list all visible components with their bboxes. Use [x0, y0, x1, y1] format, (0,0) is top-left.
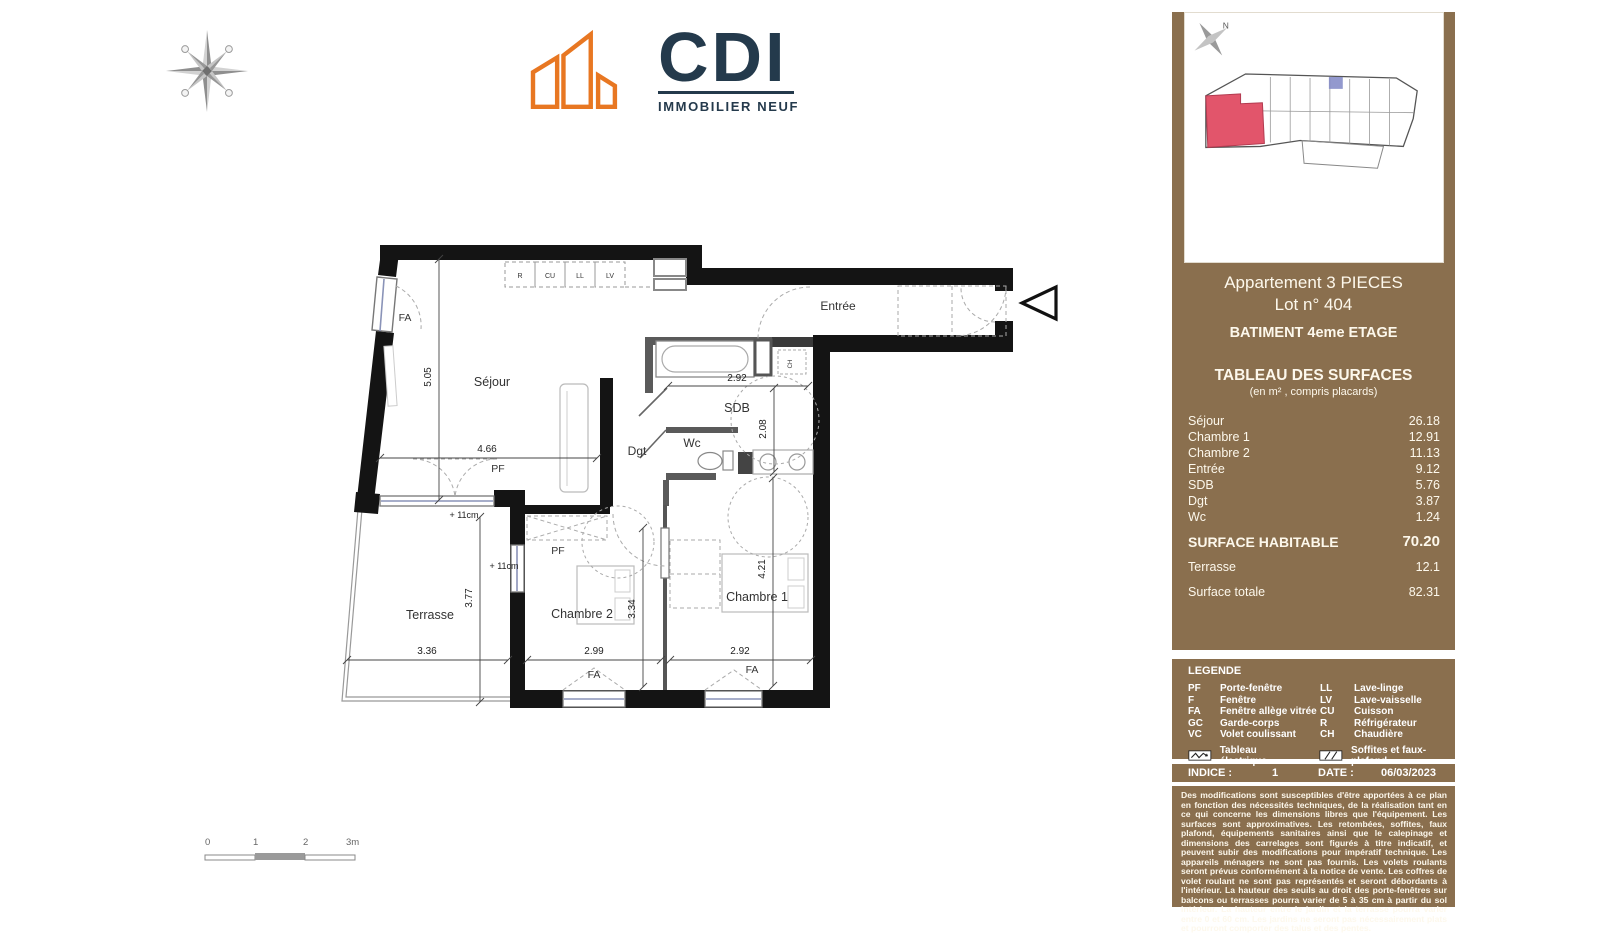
table-row: Chambre 112.91 — [1172, 429, 1455, 445]
electrical-panel-icon — [1188, 749, 1212, 762]
scale-labels: 0 1 2 3m — [205, 837, 359, 848]
toilet-icon — [698, 453, 722, 470]
building-map-svg: N — [1185, 13, 1443, 262]
tag-fa-chambre1: FA — [746, 664, 759, 676]
scale-bar: 0 1 2 3m — [200, 833, 370, 869]
duct-column — [755, 340, 771, 375]
table-row: SDB5.76 — [1172, 477, 1455, 493]
cdi-buildings-icon — [512, 26, 638, 110]
highlighted-apartment — [1205, 94, 1264, 148]
disclaimer-block: Des modifications sont susceptibles d'êt… — [1172, 786, 1455, 907]
indice-value: 1 — [1232, 767, 1318, 779]
fixtures — [384, 259, 813, 624]
room-label-sdb: SDB — [724, 401, 750, 415]
table-row: Wc1.24 — [1172, 509, 1455, 525]
dim-chambre1-w: 2.92 — [730, 646, 750, 657]
room-label-chambre1: Chambre 1 — [726, 590, 788, 604]
date-label: DATE : — [1318, 767, 1376, 779]
surface-totale-row: Surface totale82.31 — [1172, 584, 1455, 600]
surface-habitable-row: SURFACE HABITABLE70.20 — [1172, 534, 1455, 550]
tag-dishwasher: LV — [606, 273, 614, 280]
surfaces-table: Séjour26.18 Chambre 112.91 Chambre 211.1… — [1172, 413, 1455, 600]
dim-sejour-h: 5.05 — [423, 367, 434, 387]
tag-washer: LL — [576, 273, 584, 280]
room-label-dgt: Dgt — [628, 444, 647, 458]
apartment-title: Appartement 3 PIECES — [1172, 272, 1455, 294]
tag-pf-sejour: PF — [491, 463, 504, 475]
info-panel: N Appartement 3 PIECES Lot n° 404 BATIME… — [1172, 0, 1455, 900]
terrasse-row: Terrasse12.1 — [1172, 559, 1455, 575]
tag-fridge: R — [517, 273, 522, 280]
indice-label: INDICE : — [1188, 767, 1232, 779]
soffits-icon — [1319, 749, 1343, 762]
entrance-arrow-icon — [1022, 287, 1056, 319]
step-annotation-1: + 11cm — [449, 510, 478, 520]
stairwell-mark — [1328, 77, 1342, 89]
room-label-chambre2: Chambre 2 — [551, 607, 613, 621]
tag-boiler: CH — [788, 360, 794, 369]
surfaces-table-subtitle: (en m² , compris placards) — [1172, 386, 1455, 398]
step-annotation-2: + 11cm — [489, 561, 518, 571]
cdi-logo: CDI IMMOBILIER NEUF — [512, 26, 799, 114]
kitchen-sink-icon — [654, 259, 686, 276]
dim-chambre2-h: 3.34 — [627, 599, 638, 619]
map-north-label: N — [1222, 20, 1228, 30]
disclaimer-text: Des modifications sont susceptibles d'êt… — [1181, 791, 1447, 934]
lot-number: Lot n° 404 — [1172, 294, 1455, 316]
floor-plan: Séjour Entrée SDB Wc Dgt Chambre 2 Chamb… — [330, 225, 1075, 735]
room-label-sejour: Séjour — [474, 375, 510, 389]
dim-terrasse-h: 3.77 — [464, 588, 475, 608]
electrical-panel-label: Tableau électrique — [1220, 745, 1294, 767]
terrace-outline — [342, 509, 511, 701]
dim-chambre1-h: 4.21 — [757, 559, 768, 579]
scale-2: 2 — [303, 837, 308, 848]
legend-title: LEGENDE — [1188, 665, 1445, 677]
table-row: Chambre 211.13 — [1172, 445, 1455, 461]
dim-sejour-w: 4.66 — [477, 444, 497, 455]
date-value: 06/03/2023 — [1376, 767, 1441, 779]
building-floor: BATIMENT 4eme ETAGE — [1172, 325, 1455, 341]
dim-terrasse-w: 3.36 — [417, 646, 437, 657]
surfaces-block: N Appartement 3 PIECES Lot n° 404 BATIME… — [1172, 12, 1455, 650]
scale-3m: 3m — [346, 837, 359, 848]
surfaces-table-title: TABLEAU DES SURFACES — [1172, 367, 1455, 385]
dim-sdb-h: 2.08 — [758, 419, 769, 439]
map-north-arrow-icon — [1185, 13, 1238, 67]
logo-subtitle: IMMOBILIER NEUF — [658, 99, 799, 114]
legend-block: LEGENDE PFPorte-fenêtre LLLave-linge FFe… — [1172, 657, 1455, 761]
indice-date-row: INDICE : 1 DATE : 06/03/2023 — [1172, 764, 1455, 782]
table-row: Dgt3.87 — [1172, 493, 1455, 509]
tag-fa-chambre2: FA — [588, 669, 601, 681]
legend-grid: PFPorte-fenêtre LLLave-linge FFenêtre LV… — [1188, 683, 1445, 741]
table-row: Séjour26.18 — [1172, 413, 1455, 429]
dim-chambre2-w: 2.99 — [584, 646, 604, 657]
tag-fa-left: FA — [399, 312, 412, 324]
sofa-icon — [560, 384, 588, 492]
room-label-terrasse: Terrasse — [406, 608, 454, 622]
logo-wordmark: CDI — [658, 26, 799, 88]
room-label-wc: Wc — [683, 436, 700, 450]
tag-pf-chambre2: PF — [551, 545, 564, 557]
building-location-map: N — [1184, 12, 1444, 263]
dim-sdb-w: 2.92 — [727, 373, 747, 384]
scale-1: 1 — [253, 837, 258, 848]
scale-0: 0 — [205, 837, 210, 848]
compass-rose-icon — [160, 24, 254, 118]
table-row: Entrée9.12 — [1172, 461, 1455, 477]
room-label-entree: Entrée — [820, 299, 856, 313]
tag-cooktop: CU — [545, 273, 555, 280]
logo-rule — [658, 91, 794, 94]
soffits-label: Soffites et faux-plafond — [1351, 745, 1445, 767]
